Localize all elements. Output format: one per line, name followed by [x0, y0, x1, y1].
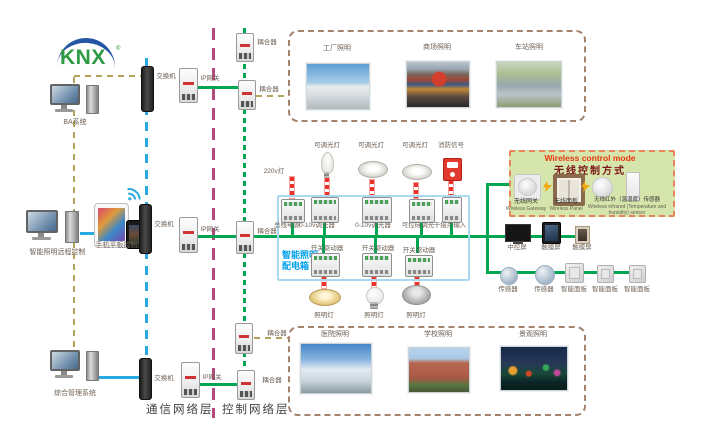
knx-lighting-topology-diagram: KNX ® BA系统 手机平板控制端 智能照明远程控制 综合管理系统 交换机	[0, 0, 715, 443]
dimmable-lamp1-label: 可调光灯	[310, 142, 344, 149]
sensor1-label: 传感器	[494, 286, 522, 293]
smart-panel-1	[565, 263, 584, 283]
right-bus-vertical	[486, 183, 489, 274]
dry-contact-label: 干接点输入	[431, 222, 469, 229]
touch-screen-device	[542, 222, 561, 244]
gateway1-label: IP网关	[197, 75, 223, 82]
gateway3-label: IP网关	[199, 374, 225, 381]
dimmer-module-2	[362, 197, 392, 223]
switch3-label: 交换机	[152, 375, 176, 382]
photo-label-landscape: 景观照明	[500, 331, 566, 339]
triac-dimmer-module	[409, 199, 435, 223]
panel-light-lamp	[402, 164, 432, 180]
photo-label-mall: 商场照明	[407, 44, 467, 52]
panel-title-line2: 配电箱	[282, 261, 309, 271]
ba-system-computer	[50, 84, 102, 118]
coupler-3	[236, 221, 254, 254]
switch-driver-3	[405, 255, 433, 277]
wireless-gateway-icon	[514, 174, 541, 200]
lamp1-label: 照明灯	[310, 312, 338, 319]
switch-driver-1	[311, 253, 340, 277]
school-photo	[408, 347, 470, 393]
coupler4-label: 耦合器	[265, 330, 289, 337]
smart-panel2-label: 智能面板	[588, 286, 622, 293]
coupler2-label: 耦合器	[257, 86, 281, 93]
wireless-panel-label: 无线面板 Wireless Panel	[546, 199, 586, 212]
smart-panel1-label: 智能面板	[557, 286, 591, 293]
smart-panel3-label: 智能面板	[620, 286, 654, 293]
downlight-lamp	[358, 161, 388, 178]
bulb-lamp-base	[370, 302, 378, 309]
bus-power-module	[281, 199, 305, 223]
source-220v-label: 220v灯	[260, 168, 288, 175]
switch2-label: 交换机	[152, 221, 176, 228]
ip-gateway-1	[179, 68, 198, 103]
registered-mark: ®	[116, 46, 120, 52]
management-system-computer	[50, 350, 102, 386]
photo-label-school: 学校照明	[408, 331, 468, 339]
network-switch-1	[141, 66, 154, 112]
photo-label-factory: 工厂照明	[307, 45, 367, 53]
driver2-label: 开关驱动器	[357, 245, 399, 252]
wireless-sensor-label: 无线红外（温湿度）传感器 Wireless infrared (Temperat…	[584, 197, 670, 216]
knx-logo: KNX ®	[56, 38, 126, 74]
switch1-label: 交换机	[154, 73, 178, 80]
pc3-switch-link	[98, 376, 140, 379]
dimmer1-label: 0-10v调光器	[296, 222, 338, 229]
dimmer-module-1	[311, 197, 339, 223]
remote-control-computer	[26, 210, 82, 248]
candle-lamp-base	[324, 172, 329, 178]
ip-gateway-3	[181, 362, 200, 398]
saucer-lamp	[402, 285, 431, 305]
wall-touch-panel-device	[575, 226, 590, 244]
coupler-2	[238, 80, 256, 110]
wall-touch-panel-label: 触摸屏	[568, 244, 596, 251]
network-switch-2	[139, 204, 152, 254]
coupler-4	[235, 323, 253, 354]
tan-link-line-top	[74, 75, 142, 77]
management-system-label: 综合管理系统	[35, 390, 115, 398]
knx-logo-text: KNX	[60, 46, 106, 70]
coupler-1	[236, 33, 254, 62]
landscape-photo	[500, 346, 568, 391]
fire-signal-label: 消防信号	[434, 142, 468, 149]
ba-system-label: BA系统	[40, 119, 110, 127]
switch-driver-2	[362, 253, 392, 277]
candle-lamp	[321, 152, 334, 174]
driver3-label: 开关驱动器	[398, 247, 440, 254]
wireless-gateway-label: 无线网关 Wireless Gateway	[502, 199, 550, 212]
sensor2-label: 传感器	[530, 286, 558, 293]
ip-gateway-2	[179, 217, 198, 253]
station-photo	[496, 61, 562, 108]
fire-alarm-device	[443, 158, 462, 181]
ceiling-lamp	[309, 289, 341, 306]
coupler5-label: 耦合器	[260, 377, 284, 384]
remote-control-label: 智能照明远程控制	[10, 249, 105, 257]
central-screen-device	[505, 224, 531, 242]
touch-screen-label: 触摸屏	[537, 244, 565, 251]
mall-photo	[406, 61, 470, 108]
comm-layer-label: 通信网络层	[146, 401, 214, 417]
coupler-5	[237, 370, 255, 400]
dry-contact-module	[442, 197, 462, 223]
sensor-device-1	[500, 267, 518, 285]
lamp3-label: 照明灯	[402, 312, 430, 319]
photo-label-hospital: 医院照明	[300, 331, 370, 339]
coupler1-label: 耦合器	[255, 39, 279, 46]
hospital-photo	[300, 343, 372, 394]
wireless-sensor-icon	[592, 177, 613, 198]
tan-stub-top-frame	[256, 95, 288, 97]
sensor-device-2	[535, 265, 555, 285]
dimmable-lamp3-label: 可调光灯	[398, 142, 432, 149]
network-switch-3	[139, 358, 152, 400]
photo-label-station: 车站照明	[497, 44, 561, 52]
smart-panel-2	[597, 265, 614, 283]
dimmer2-label: 0-10v调光器	[352, 222, 394, 229]
lamp2-label: 照明灯	[360, 312, 388, 319]
ctrl-layer-label: 控制网络层	[222, 401, 290, 417]
driver1-label: 开关驱动器	[306, 245, 348, 252]
factory-photo	[306, 63, 370, 110]
central-screen-label: 中控屏	[503, 244, 531, 251]
smart-panel-3	[629, 265, 646, 283]
dimmable-lamp2-label: 可调光灯	[354, 142, 388, 149]
gateway2-label: IP网关	[197, 226, 223, 233]
